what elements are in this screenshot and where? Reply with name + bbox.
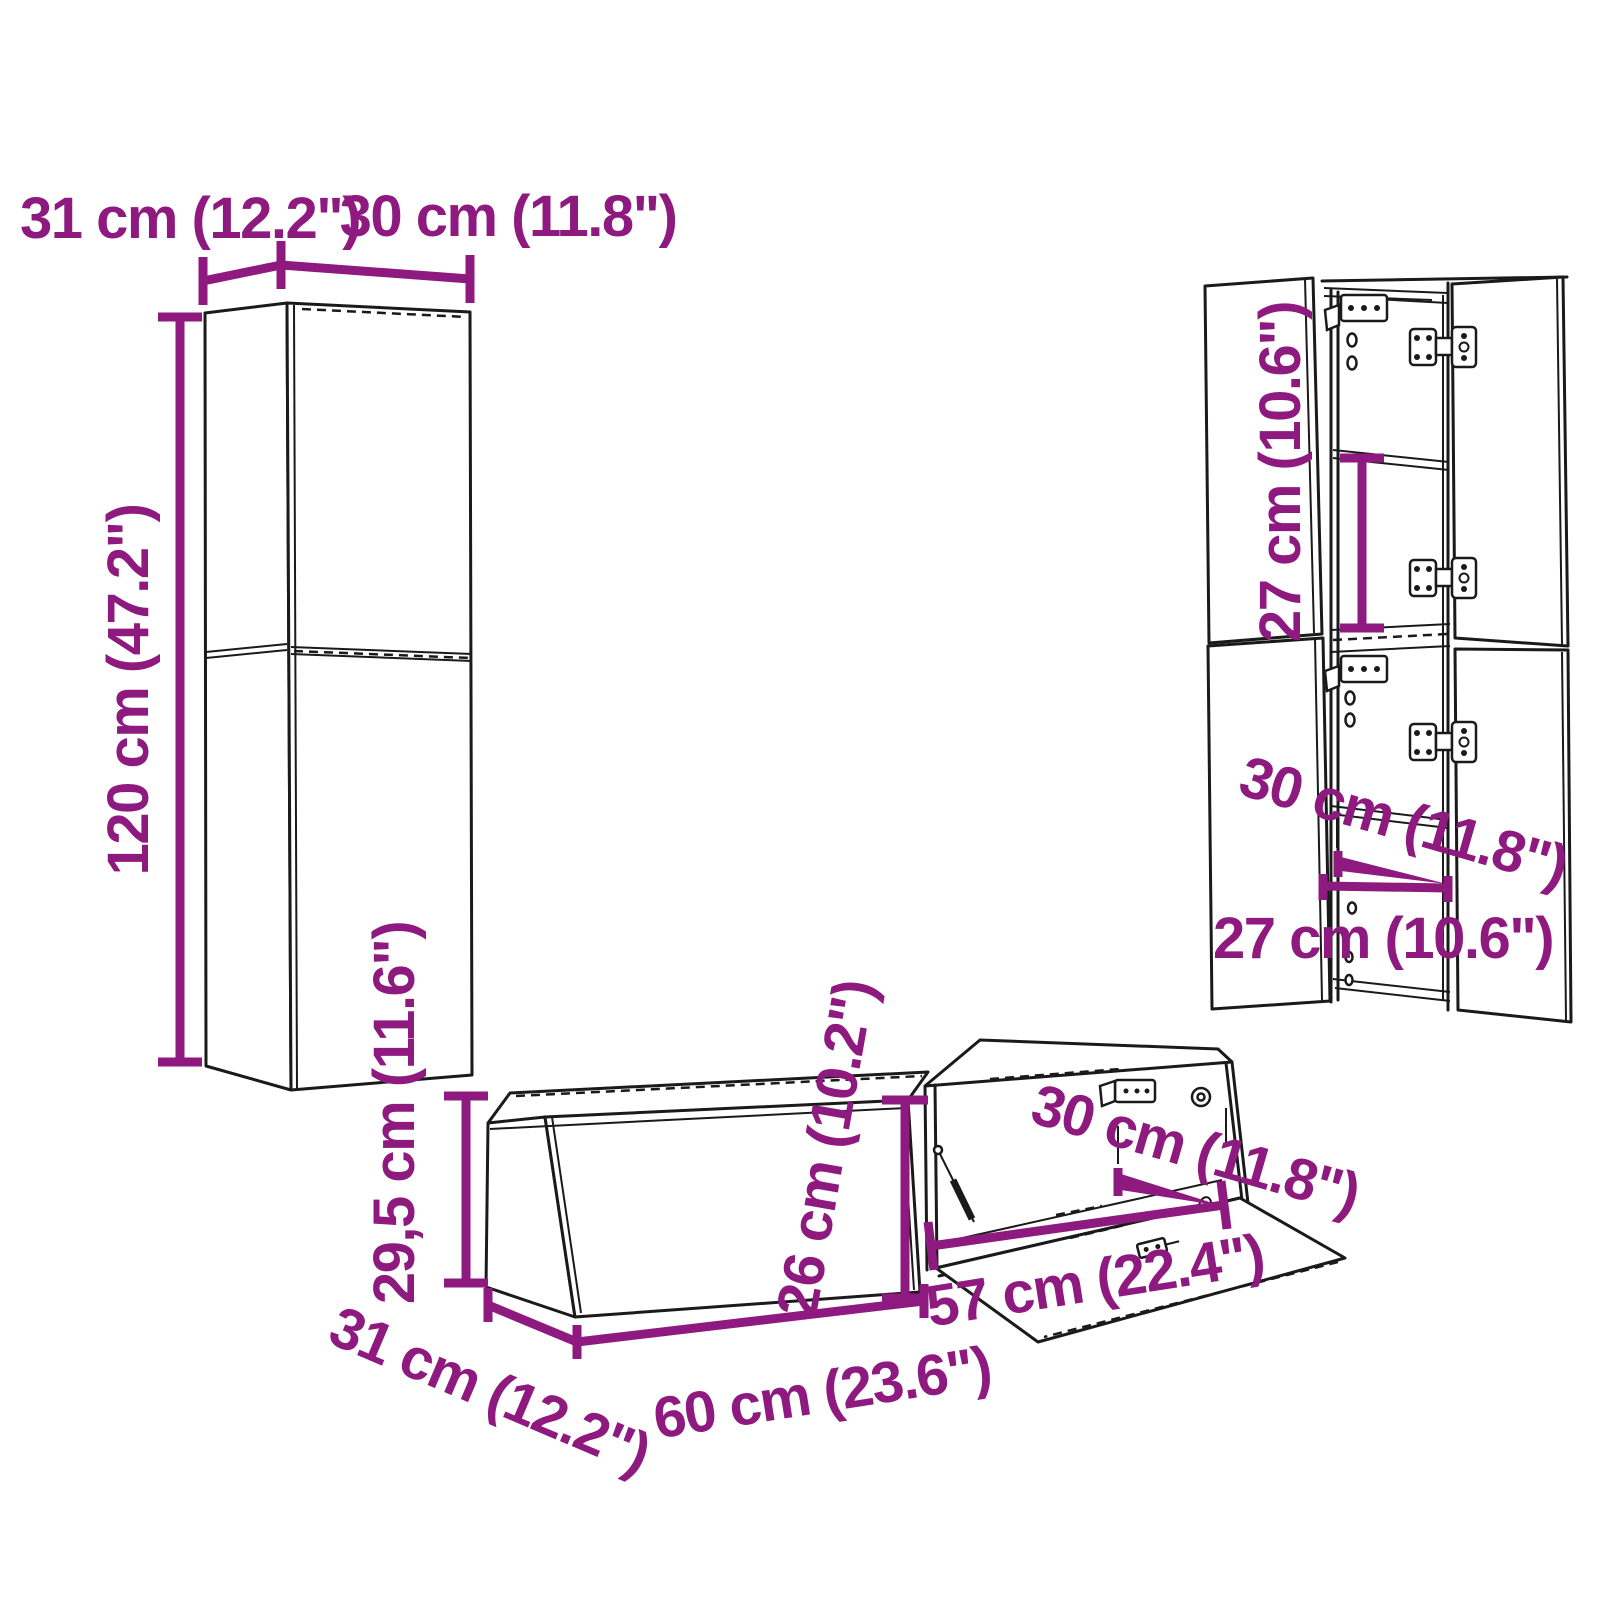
diagram-canvas: 31 cm (12.2") 30 cm (11.8") 120 cm (47.2… — [0, 0, 1600, 1600]
label-tv-height: 29,5 cm (11.6") — [362, 922, 427, 1304]
label-tall-height: 120 cm (47.2") — [96, 505, 161, 876]
shelf-pin-hole — [1346, 714, 1355, 727]
tv-cabinet-front-face — [545, 1100, 920, 1317]
unit-junction-hatch — [1333, 634, 1448, 640]
bracket-dot — [1135, 1089, 1140, 1094]
bracket-dot — [1145, 1089, 1150, 1094]
shelf-pin-hole — [1348, 334, 1357, 347]
flap-cabinet-top-face — [925, 1040, 1232, 1086]
bracket-plate — [1325, 666, 1339, 691]
bracket-dot — [1124, 1089, 1129, 1094]
tall-cabinet-closed — [205, 303, 472, 1090]
cable-grommet-icon — [1198, 1094, 1205, 1101]
label-tall-width: 30 cm (11.8") — [340, 184, 677, 249]
shelf-pin-hole — [1346, 692, 1355, 705]
label-open-compartment-height: 27 cm (10.6") — [1248, 302, 1313, 642]
tall-cabinet-side-face — [205, 303, 291, 1090]
shelf-pin-hole — [1348, 357, 1357, 370]
dimension-diagram: 31 cm (12.2") 30 cm (11.8") 120 cm (47.2… — [0, 0, 1600, 1600]
gas-strut-mount — [934, 1146, 942, 1154]
shelf-pin-hole — [1346, 975, 1353, 985]
dim-line-top — [203, 265, 470, 281]
wall-bracket-icon — [1341, 656, 1387, 682]
carcass-left-wall — [1331, 290, 1338, 1002]
bracket-plate — [1325, 305, 1339, 330]
gas-strut-body — [953, 1180, 972, 1219]
label-tv-width: 60 cm (23.6") — [649, 1334, 995, 1451]
wall-bracket-icon — [1341, 295, 1387, 321]
label-tall-depth: 31 cm (12.2") — [20, 186, 360, 251]
label-tv-depth: 31 cm (12.2") — [320, 1294, 658, 1487]
dim-line-inner-27 — [1323, 886, 1448, 888]
label-open-inner-width: 27 cm (10.6") — [1213, 906, 1553, 971]
